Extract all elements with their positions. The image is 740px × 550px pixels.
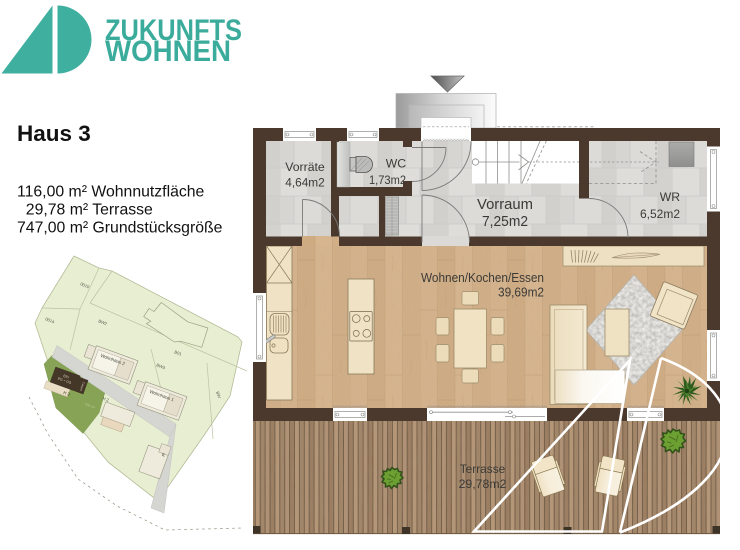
svg-text:6,52m2: 6,52m2: [640, 207, 680, 221]
svg-text:1,73m2: 1,73m2: [369, 173, 406, 187]
svg-text:747,00 m² Grundstücksgröße: 747,00 m² Grundstücksgröße: [17, 220, 223, 237]
svg-text:7,25m2: 7,25m2: [482, 214, 528, 230]
svg-text:29,78m2: 29,78m2: [459, 477, 507, 491]
svg-text:29,78 m² Terrasse: 29,78 m² Terrasse: [26, 202, 153, 219]
svg-text:WOHNEN: WOHNEN: [105, 35, 231, 68]
svg-text:Wohnen/Kochen/Essen: Wohnen/Kochen/Essen: [421, 270, 544, 285]
svg-text:116,00 m² Wohnnutzfläche: 116,00 m² Wohnnutzfläche: [17, 184, 205, 201]
svg-text:39,69m2: 39,69m2: [498, 285, 544, 300]
svg-text:Terrasse: Terrasse: [460, 462, 506, 476]
svg-text:Haus 3: Haus 3: [17, 121, 91, 146]
svg-text:WR: WR: [660, 190, 681, 204]
svg-text:W: W: [161, 453, 165, 457]
svg-text:4,64m2: 4,64m2: [285, 176, 325, 190]
svg-text:Vorraum: Vorraum: [477, 197, 533, 213]
svg-text:Vorräte: Vorräte: [285, 160, 325, 174]
svg-text:WC: WC: [386, 157, 407, 171]
